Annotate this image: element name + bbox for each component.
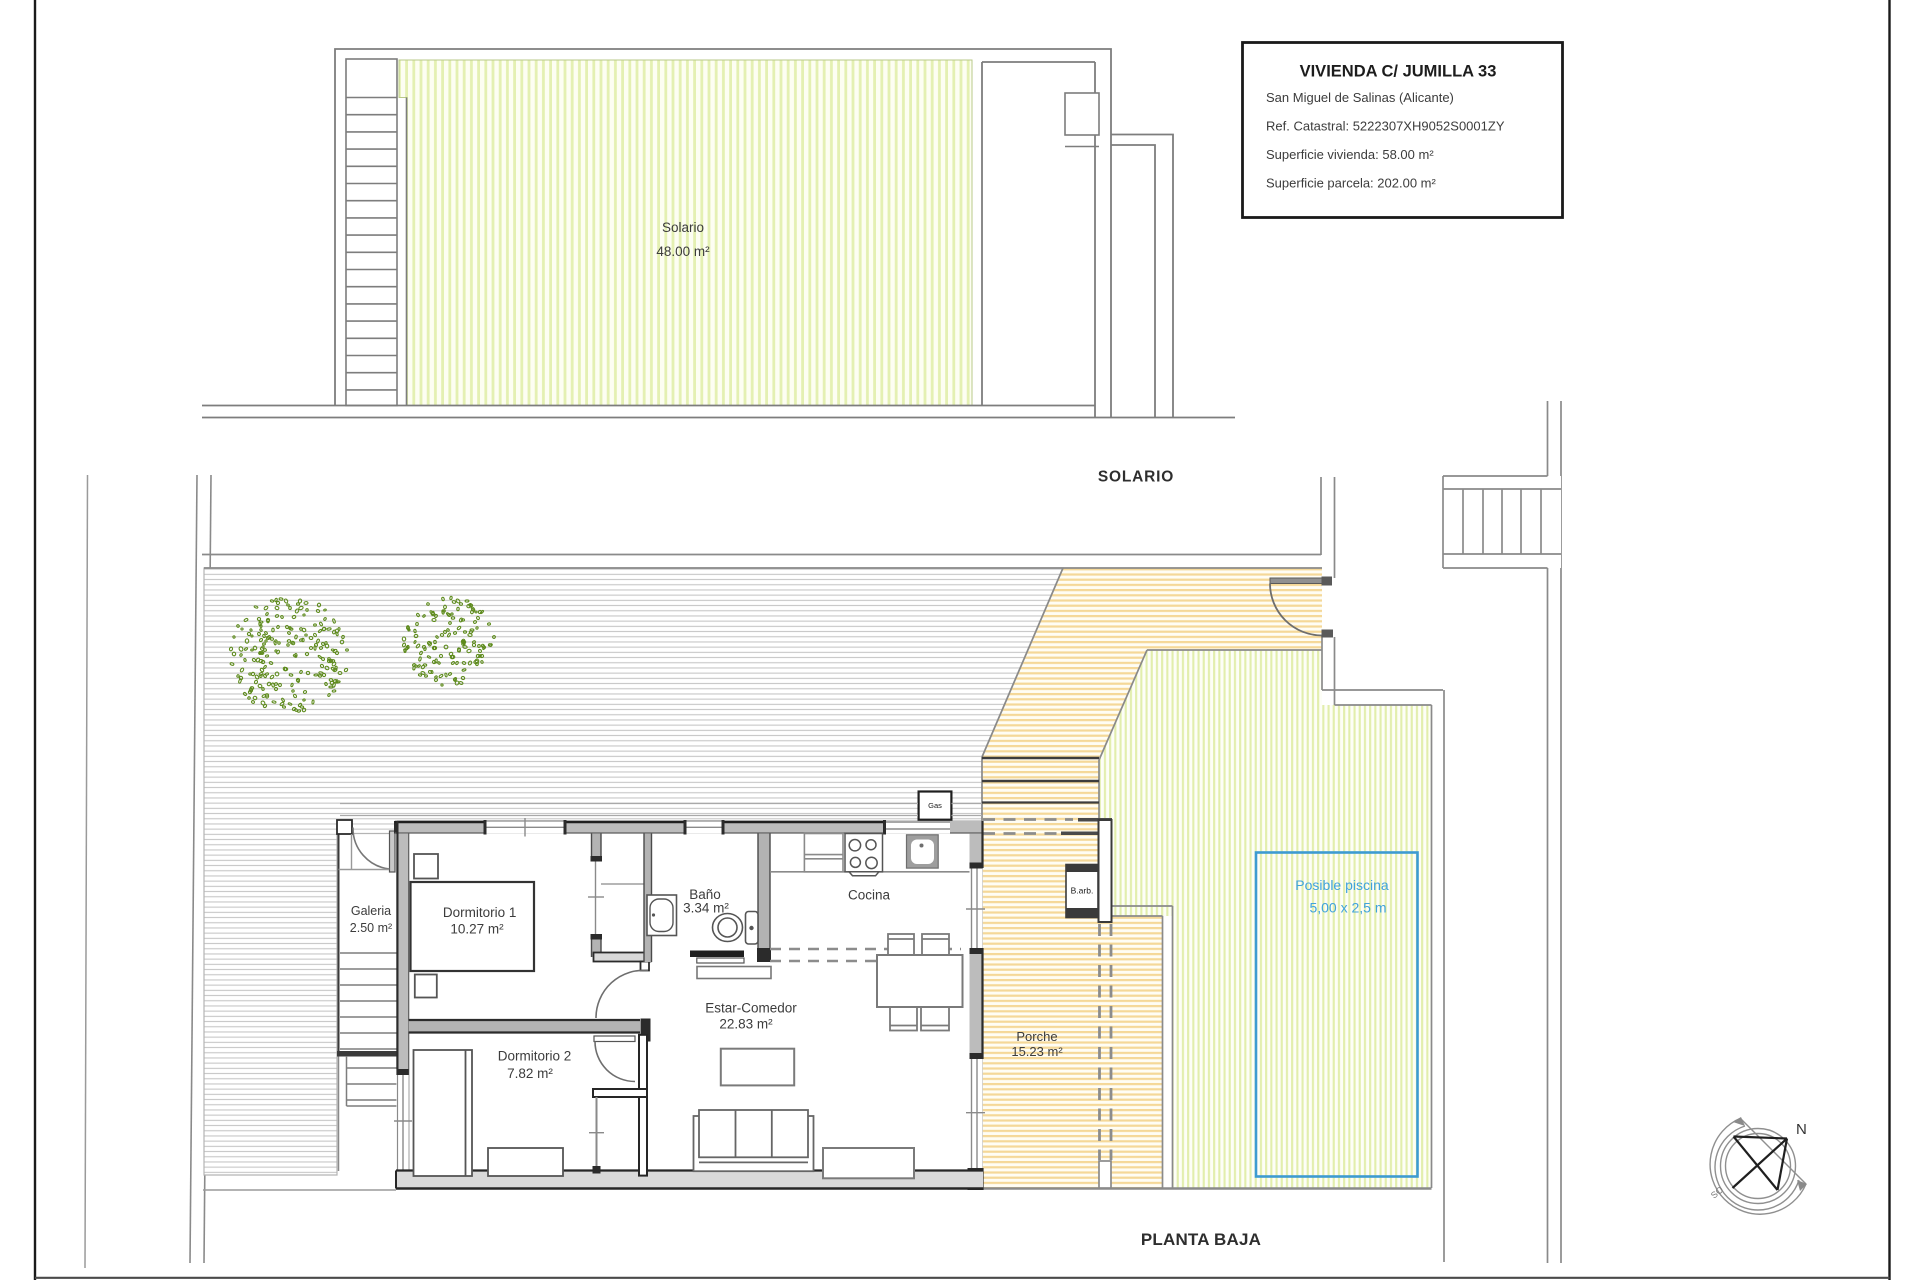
svg-text:B.arb.: B.arb. [1071, 886, 1094, 896]
svg-text:PLANTA BAJA: PLANTA BAJA [1141, 1230, 1261, 1249]
svg-text:3.34 m²: 3.34 m² [683, 901, 729, 916]
svg-text:Dormitorio 2: Dormitorio 2 [498, 1049, 572, 1064]
svg-text:Galeria: Galeria [351, 904, 391, 918]
svg-text:Gas: Gas [928, 801, 942, 810]
svg-text:Ref. Catastral: 5222307XH9052S: Ref. Catastral: 5222307XH9052S0001ZY [1266, 119, 1505, 134]
svg-text:N: N [1796, 1121, 1807, 1138]
svg-text:5,00 x 2,5 m: 5,00 x 2,5 m [1309, 900, 1386, 916]
svg-text:7.82 m²: 7.82 m² [507, 1066, 553, 1081]
svg-text:Porche: Porche [1016, 1029, 1057, 1044]
svg-text:48.00 m²: 48.00 m² [656, 244, 710, 259]
svg-text:Estar-Comedor: Estar-Comedor [705, 1001, 797, 1016]
svg-text:Dormitorio 1: Dormitorio 1 [443, 905, 517, 920]
svg-text:SOLARIO: SOLARIO [1098, 469, 1174, 486]
svg-text:Cocina: Cocina [848, 888, 891, 903]
svg-text:10.27 m²: 10.27 m² [450, 922, 504, 937]
svg-text:Solario: Solario [662, 220, 704, 235]
svg-text:Superficie vivienda: 58.00 m²: Superficie vivienda: 58.00 m² [1266, 147, 1434, 162]
svg-text:22.83 m²: 22.83 m² [719, 1017, 773, 1032]
svg-text:2.50 m²: 2.50 m² [350, 921, 392, 935]
svg-text:VIVIENDA C/ JUMILLA 33: VIVIENDA C/ JUMILLA 33 [1300, 63, 1497, 81]
svg-text:Superficie parcela: 202.00 m²: Superficie parcela: 202.00 m² [1266, 176, 1436, 191]
svg-text:Posible piscina: Posible piscina [1295, 877, 1389, 893]
svg-text:15.23 m²: 15.23 m² [1011, 1044, 1063, 1059]
svg-text:San Miguel de Salinas (Alicant: San Miguel de Salinas (Alicante) [1266, 90, 1454, 105]
